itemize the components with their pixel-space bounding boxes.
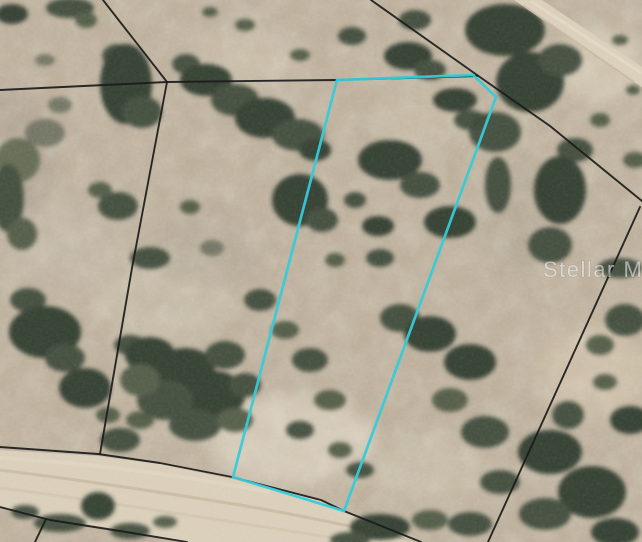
- aerial-parcel-map: Stellar MLS: [0, 0, 642, 542]
- aerial-photo: Stellar MLS: [0, 0, 642, 542]
- stellar-mls-watermark: Stellar MLS: [543, 257, 642, 282]
